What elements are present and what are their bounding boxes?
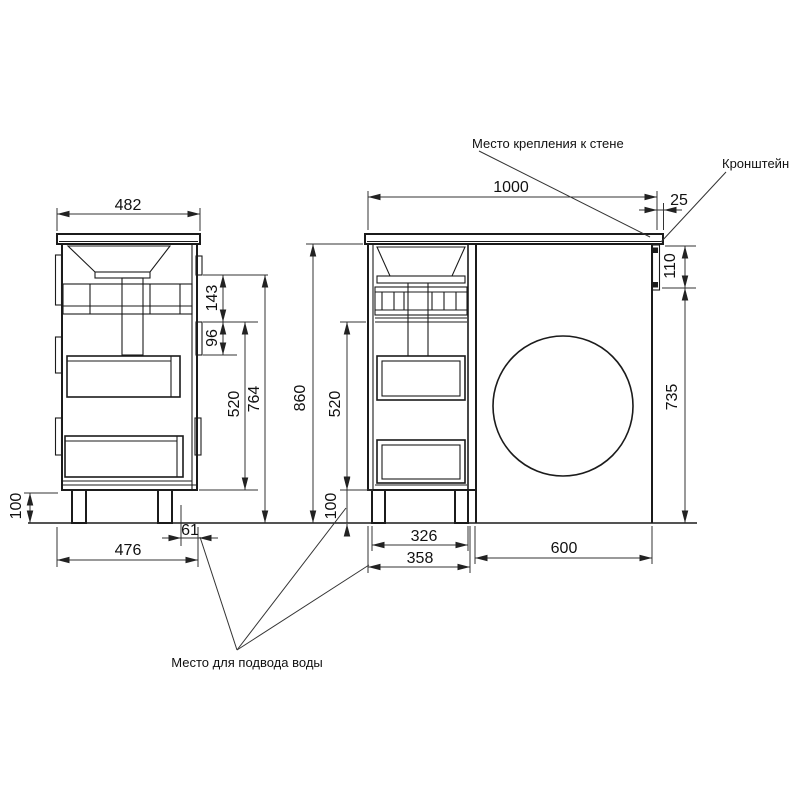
dim-text: 735 [664, 384, 681, 411]
dim-front-leg-height: 100 [323, 477, 347, 536]
front-legs [372, 490, 468, 523]
dim-front-total-height: 860 [292, 244, 363, 523]
dim-side-body-height: 764 [246, 275, 265, 523]
dim-side-leg-height: 100 [8, 493, 58, 523]
dim-side-base-depth: 476 [57, 527, 198, 567]
dim-front-drawer-section: 520 [327, 322, 373, 490]
dim-side-counter-depth: 482 [57, 197, 200, 231]
dim-text: 61 [181, 522, 199, 539]
dim-front-niche-width: 600 [475, 526, 652, 564]
dim-front-counter-width: 1000 [368, 179, 657, 230]
dim-text: 520 [226, 391, 243, 418]
drain-pipe-front [408, 283, 428, 356]
dim-front-leg-span: 326 [372, 526, 468, 551]
dim-text: 100 [8, 493, 25, 520]
dim-text: 25 [670, 192, 688, 209]
callout-water-supply: Место для подвода воды [171, 508, 369, 670]
bottom-drawer-side [62, 436, 197, 485]
drain-pipe-side [122, 278, 143, 355]
dim-front-side-overhang: 25 [639, 192, 688, 230]
upper-rail-assembly-front [375, 287, 467, 322]
side-legs [72, 490, 172, 523]
dim-text: 764 [246, 386, 263, 413]
dim-text: 326 [411, 528, 438, 545]
wall-bracket [653, 245, 660, 290]
dim-text: 358 [407, 550, 434, 567]
dim-front-bracket-to-floor: 735 [664, 288, 685, 523]
dim-text: 860 [292, 385, 309, 412]
callout-text-water-supply: Место для подвода воды [171, 655, 323, 670]
dim-text: 482 [115, 197, 142, 214]
middle-drawer-side [67, 356, 180, 397]
dim-side-back-clearance: 61 [162, 505, 218, 546]
callout-text-wall-mount: Место крепления к стене [472, 136, 624, 151]
front-countertop [365, 234, 663, 244]
dim-text: 100 [323, 493, 340, 520]
front-view [365, 234, 663, 523]
dim-text: 476 [115, 542, 142, 559]
dim-text: 96 [204, 329, 221, 347]
technical-drawing: 482 143 96 520 764 100 476 61 [0, 0, 800, 800]
washing-machine-drum [493, 336, 633, 476]
dim-text: 1000 [493, 179, 529, 196]
dim-text: 143 [204, 285, 221, 312]
dim-text: 110 [662, 253, 679, 279]
dim-text: 600 [551, 540, 578, 557]
side-view [56, 234, 203, 523]
sink-funnel-side [68, 246, 170, 278]
dim-text: 520 [327, 391, 344, 418]
bottom-drawer-front [375, 440, 467, 485]
callout-text-bracket: Кронштейн [722, 156, 789, 171]
side-countertop [57, 234, 200, 244]
dim-front-bracket-height: 110 [662, 246, 696, 288]
sink-funnel-front [377, 247, 465, 283]
dim-side-rail-offset: 143 [203, 275, 268, 322]
middle-drawer-front [377, 356, 465, 400]
dim-side-rail-height: 96 [203, 322, 237, 355]
upper-rail-assembly-side [63, 284, 192, 314]
